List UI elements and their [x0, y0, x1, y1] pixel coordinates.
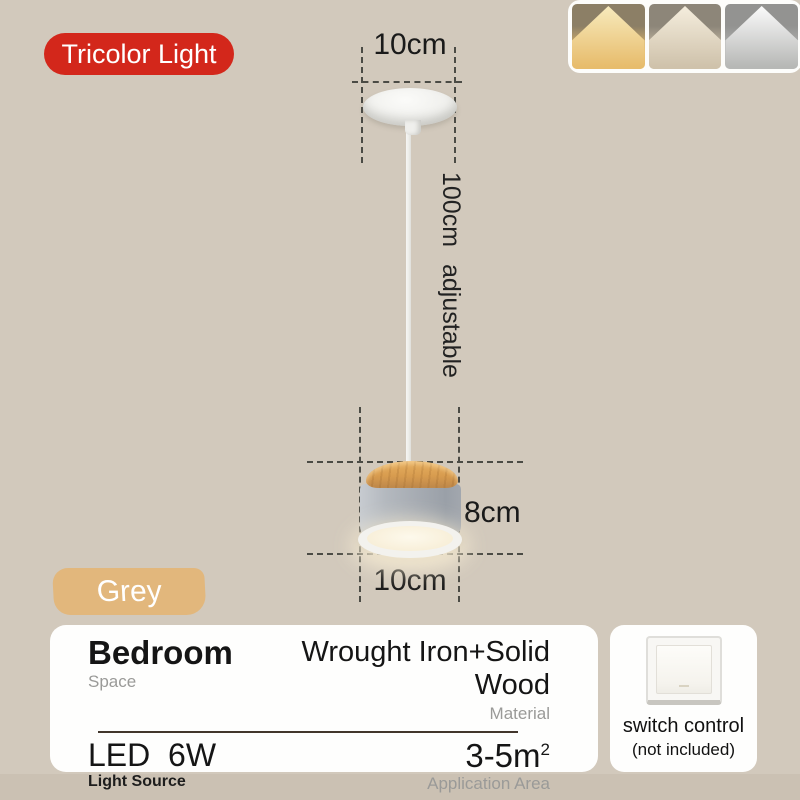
wall-switch-icon: [646, 636, 722, 705]
light-source-label: Light Source: [88, 773, 216, 791]
canopy-diameter-label: 10cm: [355, 28, 465, 62]
space-value: Bedroom: [88, 636, 233, 671]
material-value: Wrought Iron+Solid Wood: [233, 636, 550, 703]
lamp-light-diffuser: [358, 521, 462, 558]
space-label: Space: [88, 672, 233, 692]
cord-length-label: 100cm adjustable: [436, 172, 465, 382]
switch-note-line1: switch control: [610, 715, 757, 738]
switch-rocker: [656, 645, 712, 694]
lamp-diameter-label: 10cm: [357, 564, 463, 598]
lamp-cord: [406, 128, 411, 464]
lamp-lens: [367, 526, 453, 551]
canopy-stem: [405, 120, 421, 135]
color-variant-badge: Grey: [52, 568, 206, 615]
light-source-value: LED 6W: [88, 739, 216, 773]
warm-light-swatch: [572, 4, 645, 69]
material-label: Material: [233, 704, 550, 724]
card-divider: [98, 731, 518, 733]
light-mode-panel: [568, 0, 800, 73]
switch-note-card: switch control (not included): [610, 625, 757, 772]
neutral-light-swatch: [649, 4, 722, 69]
switch-indicator-mark: [679, 685, 689, 687]
application-area-label: Application Area: [427, 774, 550, 794]
tricolor-light-badge-label: Tricolor Light: [61, 39, 216, 70]
square-meter-superscript: 2: [541, 740, 550, 759]
specs-card: Bedroom Space Wrought Iron+Solid Wood Ma…: [50, 625, 598, 772]
warm-light-beam-icon: [572, 4, 645, 69]
lamp-wood-cap: [366, 461, 458, 488]
neutral-light-beam-icon: [649, 4, 722, 69]
switch-note-line2: (not included): [610, 740, 757, 760]
dimension-guide-line: [352, 81, 462, 83]
color-variant-badge-label: Grey: [96, 575, 163, 609]
product-image: Tricolor Light 10cm 100cm adjustable 8cm…: [0, 0, 800, 800]
lamp-height-label: 8cm: [464, 496, 521, 530]
tricolor-light-badge: Tricolor Light: [44, 33, 234, 75]
cool-light-swatch: [725, 4, 798, 69]
cool-light-beam-icon: [725, 4, 798, 69]
application-area-value: 3-5m2: [427, 739, 550, 774]
